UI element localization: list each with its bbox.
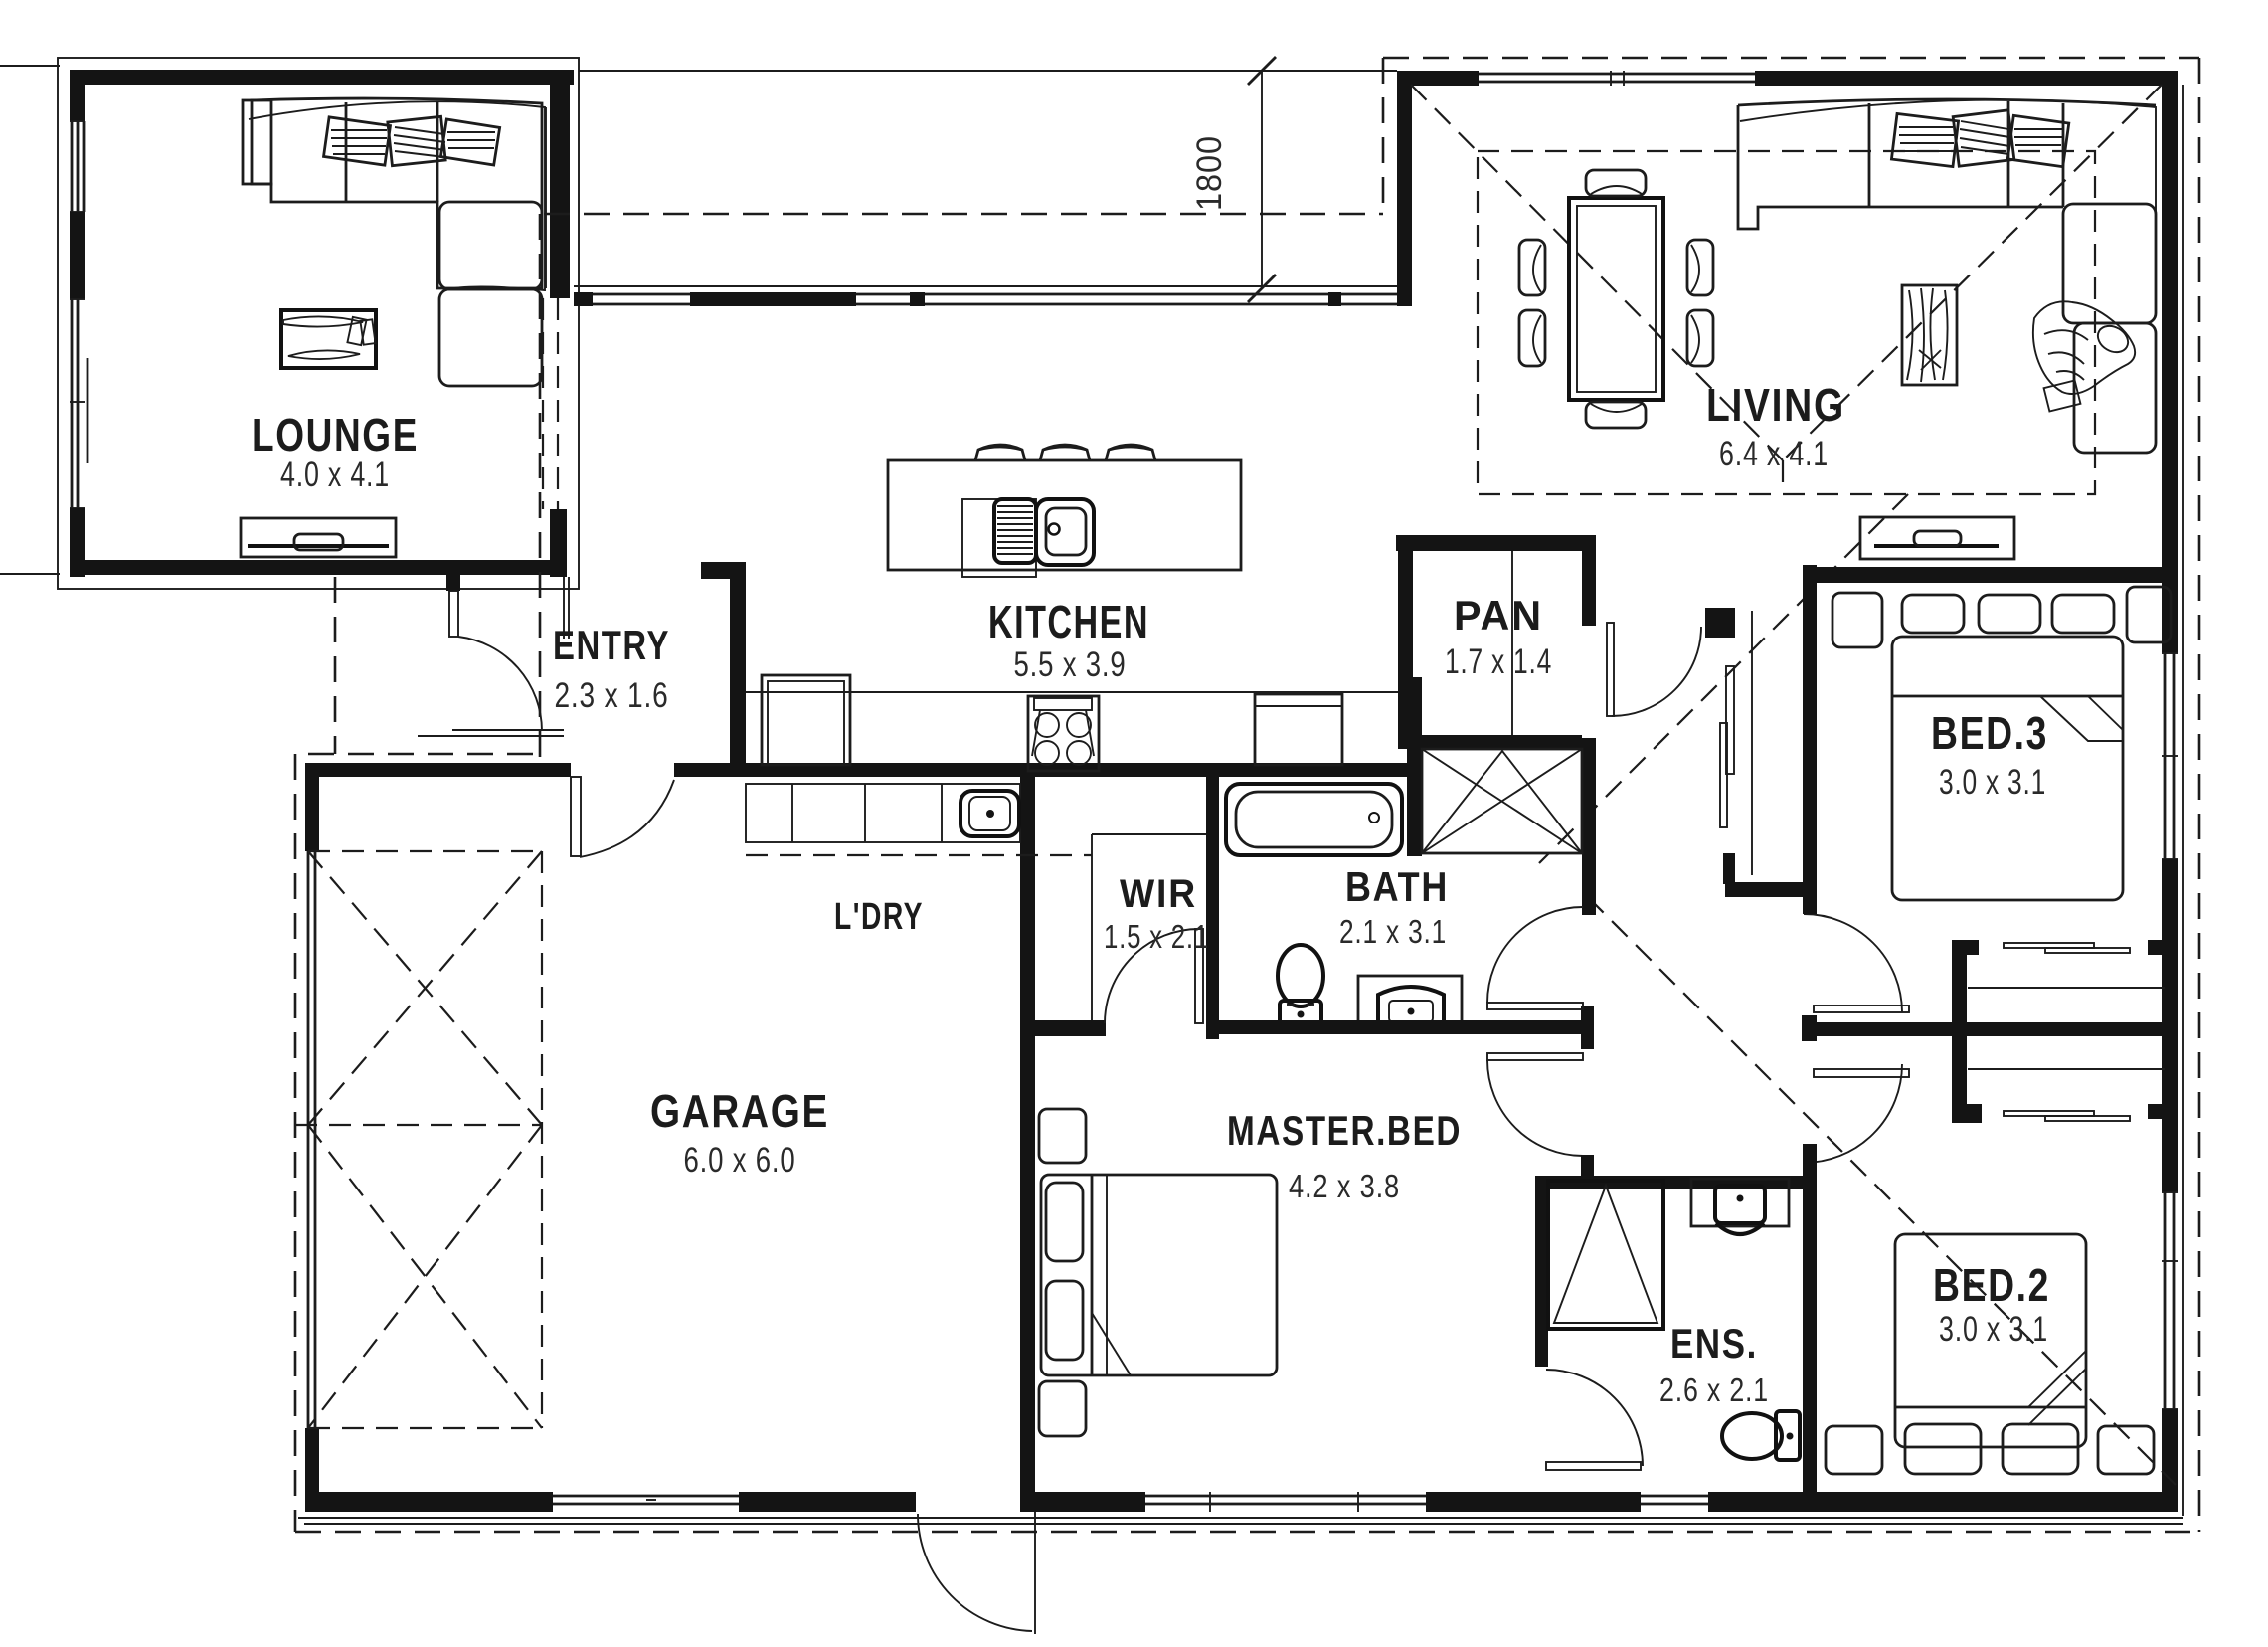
svg-text:LOUNGE: LOUNGE (252, 409, 419, 460)
svg-text:L'DRY: L'DRY (834, 896, 924, 938)
svg-text:2.6 x 2.1: 2.6 x 2.1 (1659, 1372, 1769, 1408)
svg-text:LIVING: LIVING (1706, 379, 1845, 431)
svg-text:6.4 x 4.1: 6.4 x 4.1 (1719, 435, 1829, 473)
svg-text:5.5 x 3.9: 5.5 x 3.9 (1014, 645, 1127, 684)
svg-text:PAN: PAN (1454, 592, 1543, 639)
svg-text:BATH: BATH (1345, 863, 1449, 910)
svg-text:MASTER.BED: MASTER.BED (1227, 1107, 1462, 1154)
svg-text:ENS.: ENS. (1670, 1320, 1758, 1367)
svg-text:ENTRY: ENTRY (553, 622, 670, 668)
svg-text:3.0 x 3.1: 3.0 x 3.1 (1939, 1310, 2048, 1349)
svg-text:1.5 x 2.1: 1.5 x 2.1 (1104, 918, 1209, 955)
svg-text:1.7 x 1.4: 1.7 x 1.4 (1445, 642, 1552, 681)
svg-text:GARAGE: GARAGE (650, 1085, 829, 1137)
svg-text:KITCHEN: KITCHEN (988, 596, 1149, 647)
svg-text:BED.3: BED.3 (1931, 707, 2048, 759)
svg-text:4.2 x 3.8: 4.2 x 3.8 (1289, 1168, 1400, 1204)
svg-text:4.0 x 4.1: 4.0 x 4.1 (280, 456, 390, 494)
svg-text:6.0 x 6.0: 6.0 x 6.0 (684, 1141, 796, 1180)
svg-text:1800: 1800 (1190, 135, 1229, 211)
svg-text:BED.2: BED.2 (1933, 1259, 2050, 1311)
svg-text:WIR: WIR (1120, 872, 1197, 916)
svg-text:2.1 x 3.1: 2.1 x 3.1 (1339, 913, 1447, 950)
svg-text:3.0 x 3.1: 3.0 x 3.1 (1939, 763, 2046, 802)
svg-text:2.3 x 1.6: 2.3 x 1.6 (555, 676, 669, 715)
